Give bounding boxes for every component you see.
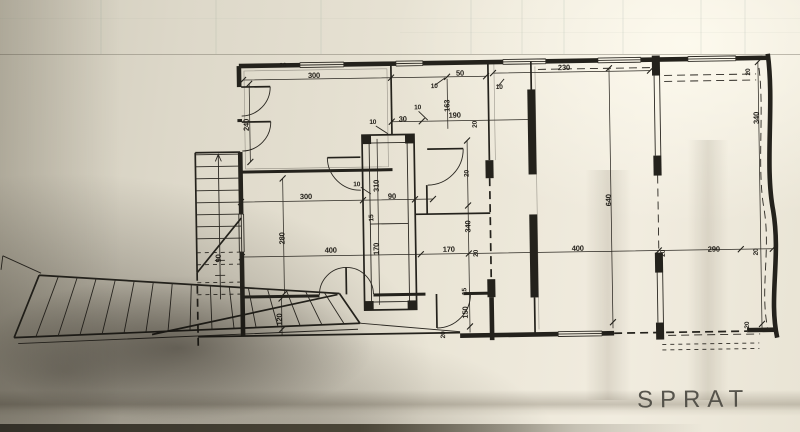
dim-label: 20 xyxy=(473,249,480,257)
shaft-corner xyxy=(405,134,414,143)
wall-pier xyxy=(653,155,661,175)
dim-label: 300 xyxy=(308,71,320,80)
door-leaf xyxy=(427,149,463,150)
dim-label: 230 xyxy=(558,63,570,72)
dim-label: 10 xyxy=(431,83,439,90)
door-arc xyxy=(427,149,464,186)
dim-label: 240 xyxy=(242,119,251,131)
dim-label: 340 xyxy=(752,112,761,124)
paper-wave-shadow xyxy=(688,140,728,400)
right-colonnade-wall xyxy=(652,55,664,339)
dim-label: 20 xyxy=(464,169,471,177)
wall-poche xyxy=(527,89,536,174)
dim-label: 30 xyxy=(399,114,407,123)
dim-label: 20 xyxy=(472,120,479,128)
dim-label: 190 xyxy=(449,111,461,120)
dim-label: 310 xyxy=(372,180,381,192)
door-leaf xyxy=(327,157,360,158)
wall-pier xyxy=(652,55,660,75)
dim-label: 10 xyxy=(414,104,422,111)
wall-dashed xyxy=(658,176,659,253)
wall-segment xyxy=(413,62,490,214)
dim-label: 300 xyxy=(300,192,312,201)
wall-dashed xyxy=(490,178,492,279)
wall-poche xyxy=(529,214,538,297)
door-arc xyxy=(241,87,271,151)
table-edge-shadow xyxy=(0,424,800,432)
dim-label: 20 xyxy=(660,249,667,257)
paper-shadow xyxy=(0,0,120,432)
door-leaf xyxy=(241,87,271,122)
photographed-floor-plan: 300 50 10 10 230 20 240 163 10 30 10 190… xyxy=(0,0,800,432)
dim-label: 50 xyxy=(456,69,464,78)
dim-label: 20 xyxy=(745,68,752,76)
dim-label: 90 xyxy=(388,192,396,201)
railing-lines xyxy=(654,75,663,322)
dim-label: 15 xyxy=(368,214,375,222)
wall-segment xyxy=(391,64,392,135)
dim-label: 20 xyxy=(744,321,751,329)
paper-wave-shadow xyxy=(585,170,631,400)
wall-pier xyxy=(485,160,493,178)
top-exterior-wall xyxy=(239,55,770,68)
dim-label: 340 xyxy=(463,220,472,232)
dim-label: 400 xyxy=(572,244,584,253)
dim-label: 10 xyxy=(496,84,504,91)
balcony-dashed-line xyxy=(538,68,650,70)
plan-title: SPRAT xyxy=(637,386,750,415)
balcony-outer-edge xyxy=(768,54,778,338)
dim-label: 20 xyxy=(753,248,760,256)
wall-pier xyxy=(656,322,664,339)
dim-label: 20 xyxy=(279,62,287,69)
shaft-corner xyxy=(362,135,371,144)
dim-label: 10 xyxy=(353,181,361,188)
dim-label: 10 xyxy=(369,119,377,126)
